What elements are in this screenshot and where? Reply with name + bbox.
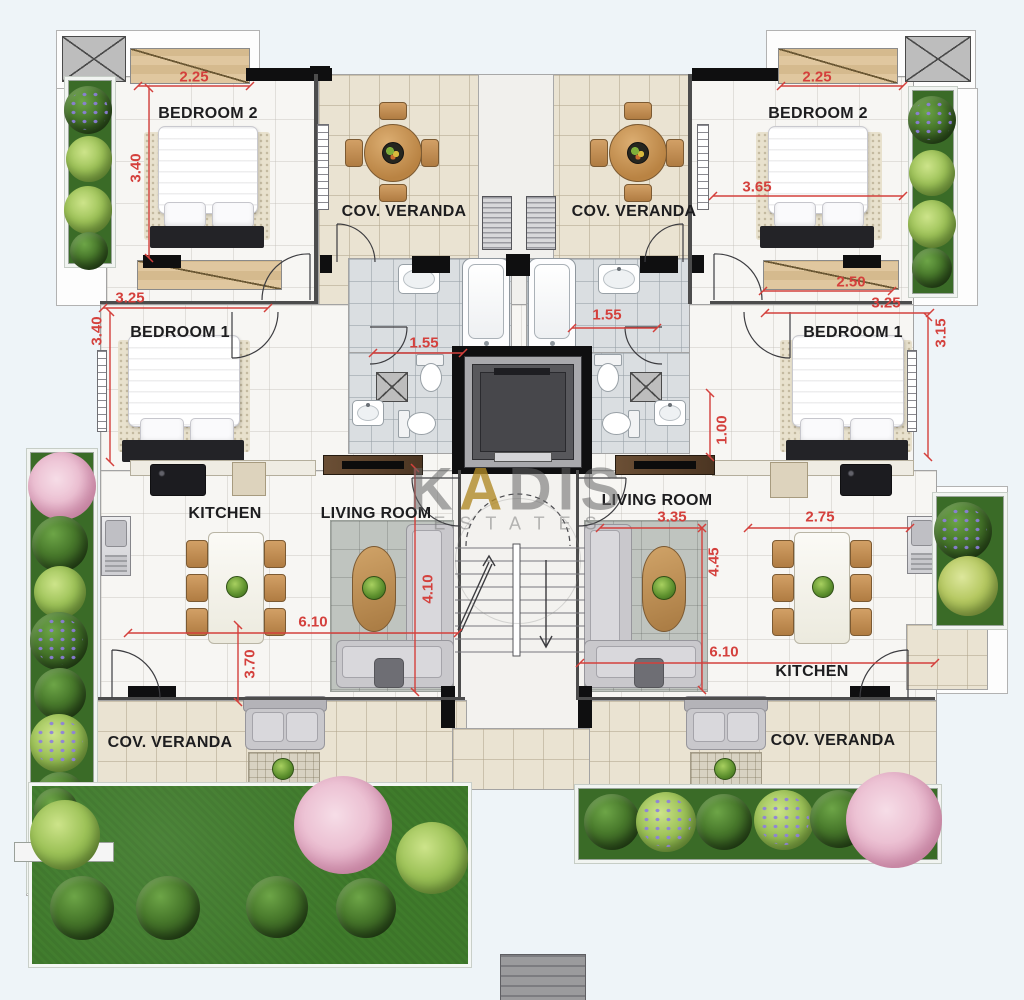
room-label-bedroom2-left: BEDROOM 2 (158, 105, 258, 123)
watermark-dis: DIS (508, 456, 626, 523)
watermark-subtitle: ESTATES (433, 514, 610, 535)
dim-label: 1.55 (592, 307, 621, 324)
room-label-kitchen-right: KITCHEN (775, 663, 848, 681)
watermark-k: K (410, 456, 459, 523)
dim-label: 3.25 (115, 290, 144, 307)
dim-label: 2.50 (836, 274, 865, 291)
dim-label: 4.10 (420, 574, 437, 603)
watermark-a: A (459, 456, 508, 523)
dim-label: 3.35 (657, 509, 686, 526)
dim-label: 3.15 (933, 318, 950, 347)
room-label-veranda-bottom-left: COV. VERANDA (108, 734, 233, 752)
dim-label: 6.10 (709, 644, 738, 661)
room-label-veranda-top-right: COV. VERANDA (572, 203, 697, 221)
dim-label: 2.25 (802, 69, 831, 86)
dim-label: 4.45 (706, 547, 723, 576)
room-label-kitchen-left: KITCHEN (188, 505, 261, 523)
room-label-veranda-top-left: COV. VERANDA (342, 203, 467, 221)
dim-label: 1.55 (409, 335, 438, 352)
dim-label: 2.25 (179, 69, 208, 86)
dim-label: 3.40 (128, 153, 145, 182)
floor-plan: BEDROOM 2 COV. VERANDA COV. VERANDA BEDR… (0, 0, 1024, 1000)
dim-label: 3.40 (89, 316, 106, 345)
dim-label: 2.75 (805, 509, 834, 526)
dim-label: 6.10 (298, 614, 327, 631)
room-label-veranda-bottom-right: COV. VERANDA (771, 732, 896, 750)
dim-label: 3.70 (242, 649, 259, 678)
dim-label: 1.00 (714, 415, 731, 444)
room-label-bedroom2-right: BEDROOM 2 (768, 105, 868, 123)
dim-label: 3.25 (871, 295, 900, 312)
room-label-bedroom1-right: BEDROOM 1 (803, 324, 903, 342)
room-label-bedroom1-left: BEDROOM 1 (130, 324, 230, 342)
dim-label: 3.65 (742, 179, 771, 196)
